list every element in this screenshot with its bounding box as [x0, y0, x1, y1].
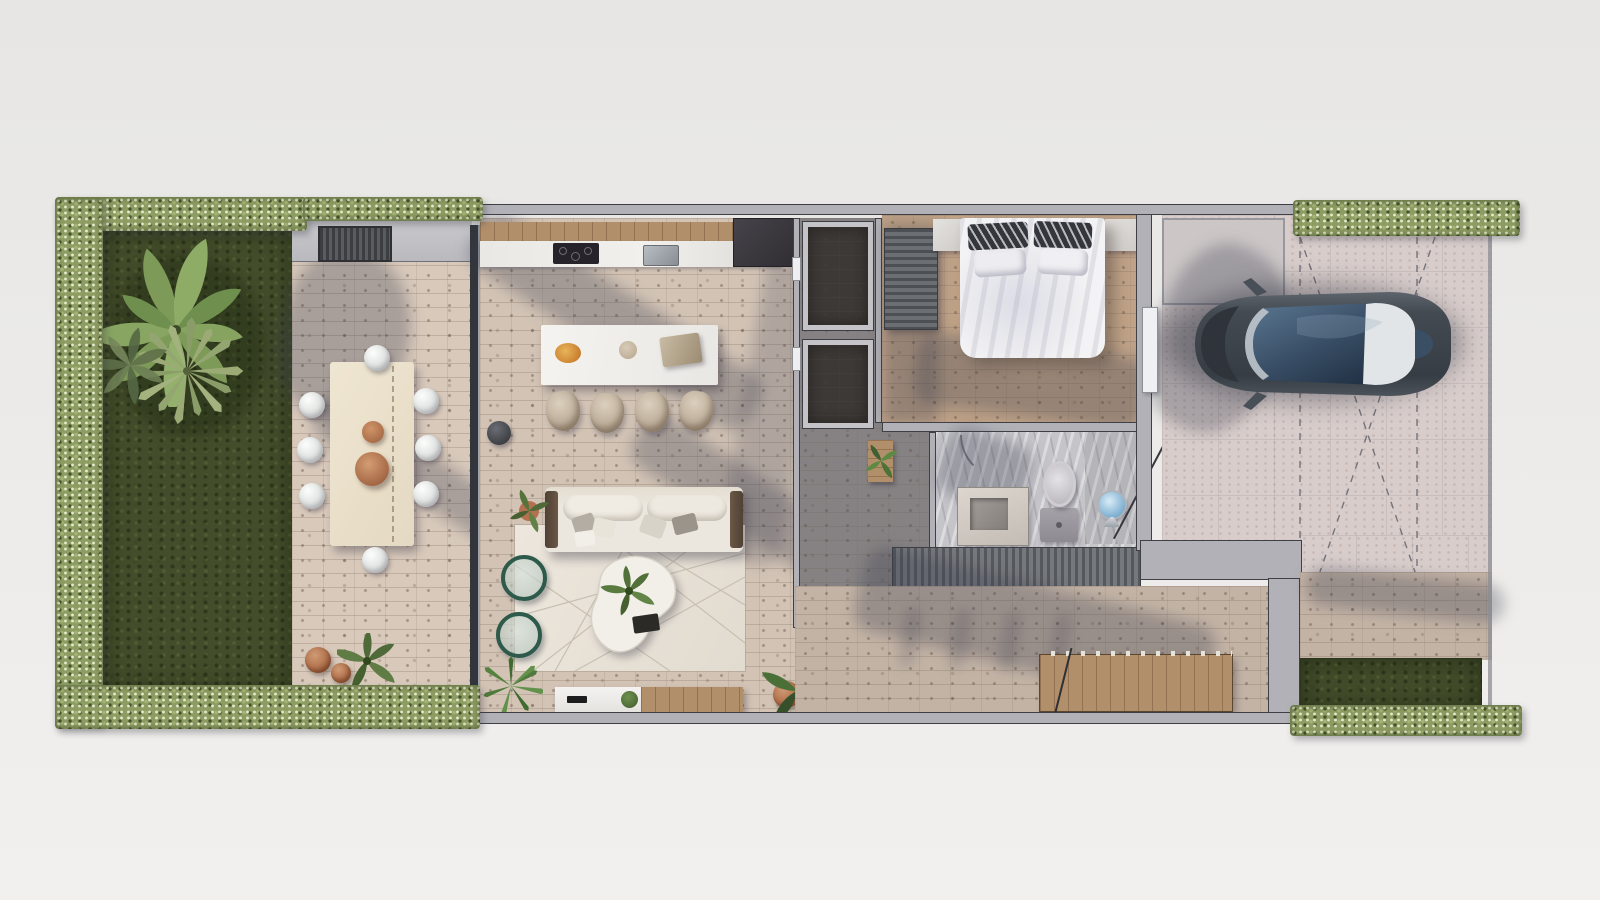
terracotta-pot: [305, 647, 331, 673]
bathroom-wall: [929, 432, 936, 548]
hedge-left: [55, 198, 103, 725]
interior-wall: [875, 218, 882, 423]
burner: [559, 247, 567, 255]
vanity: [958, 488, 1028, 545]
entry-door: [1142, 307, 1158, 393]
copper-tray-large: [355, 452, 389, 486]
hall-console-plant: [861, 441, 901, 481]
rear-wall: [470, 712, 1300, 724]
louver-band: [893, 548, 1140, 586]
door-leaf: [792, 257, 801, 281]
bowl: [619, 341, 637, 359]
console-wood-section: [641, 687, 743, 713]
sliding-glass-door: [470, 225, 478, 717]
car-top-view: [1177, 270, 1463, 418]
hedge-top-right: [1293, 200, 1520, 236]
wood-deck-stairs: [1040, 655, 1232, 711]
boundary-line-right: [1488, 209, 1492, 709]
bedroom-bath-wall: [882, 422, 1140, 432]
nightstand: [933, 219, 961, 251]
floor-plan-render: [0, 0, 1600, 900]
toilet-bowl: [1043, 461, 1076, 507]
rear-wall-band: [1140, 540, 1302, 580]
door-leaf: [792, 347, 801, 371]
hedge-bottom-left: [55, 685, 480, 729]
remote-control: [567, 696, 587, 703]
dining-table: [541, 325, 718, 385]
burner: [584, 247, 592, 255]
corner-plant: [479, 657, 543, 715]
hedge-vine-top: [303, 197, 483, 221]
patio-chair: [299, 392, 325, 418]
patio-chair: [364, 345, 390, 371]
tv-console: [555, 687, 743, 713]
property-plan: [55, 195, 1495, 735]
kitchen-sink: [643, 245, 679, 266]
side-stool: [487, 421, 511, 445]
hedge-bottom-right: [1290, 705, 1522, 736]
pillow: [973, 248, 1027, 278]
throw-pillow: [574, 530, 596, 548]
double-bed: [960, 218, 1105, 358]
shower-floor: [1085, 432, 1140, 544]
striped-pillow: [967, 221, 1028, 250]
shower-fixture: [1099, 492, 1125, 518]
throw-pillow: [591, 517, 616, 539]
patio-plant: [337, 633, 397, 689]
pillow: [1037, 248, 1088, 277]
fruit-bowl: [555, 343, 581, 363]
rear-lawn: [1300, 658, 1482, 710]
nightstand: [1105, 219, 1137, 251]
patio-chair: [299, 483, 325, 509]
serving-tray: [659, 332, 703, 367]
sofa: [545, 487, 743, 552]
closet-room: [803, 222, 873, 330]
patio-chair: [415, 435, 441, 461]
closet-room: [803, 340, 873, 428]
striped-pillow: [1034, 221, 1093, 249]
patio-chair: [413, 481, 439, 507]
rattan-chair: [496, 612, 542, 658]
flush-button: [1056, 522, 1062, 528]
sofa-arm: [730, 491, 743, 548]
sink-basin: [970, 498, 1008, 530]
table-seam: [392, 366, 394, 542]
rear-brick-paving: [1300, 572, 1492, 660]
patio-chair: [362, 547, 388, 573]
coffee-table: [583, 553, 687, 667]
burner: [571, 252, 580, 261]
copper-tray-small: [362, 421, 384, 443]
toilet-tank: [1040, 508, 1078, 542]
tall-cabinet-fridge: [733, 218, 795, 267]
console-plant: [621, 691, 638, 708]
wardrobe: [885, 229, 937, 329]
ac-unit: [318, 226, 392, 262]
patio-chair: [297, 437, 323, 463]
cooktop: [553, 243, 599, 264]
rear-wall-band: [1268, 578, 1300, 714]
rattan-chair: [501, 555, 547, 601]
patio-chair: [413, 388, 439, 414]
sofa-side-plant: [507, 489, 551, 533]
